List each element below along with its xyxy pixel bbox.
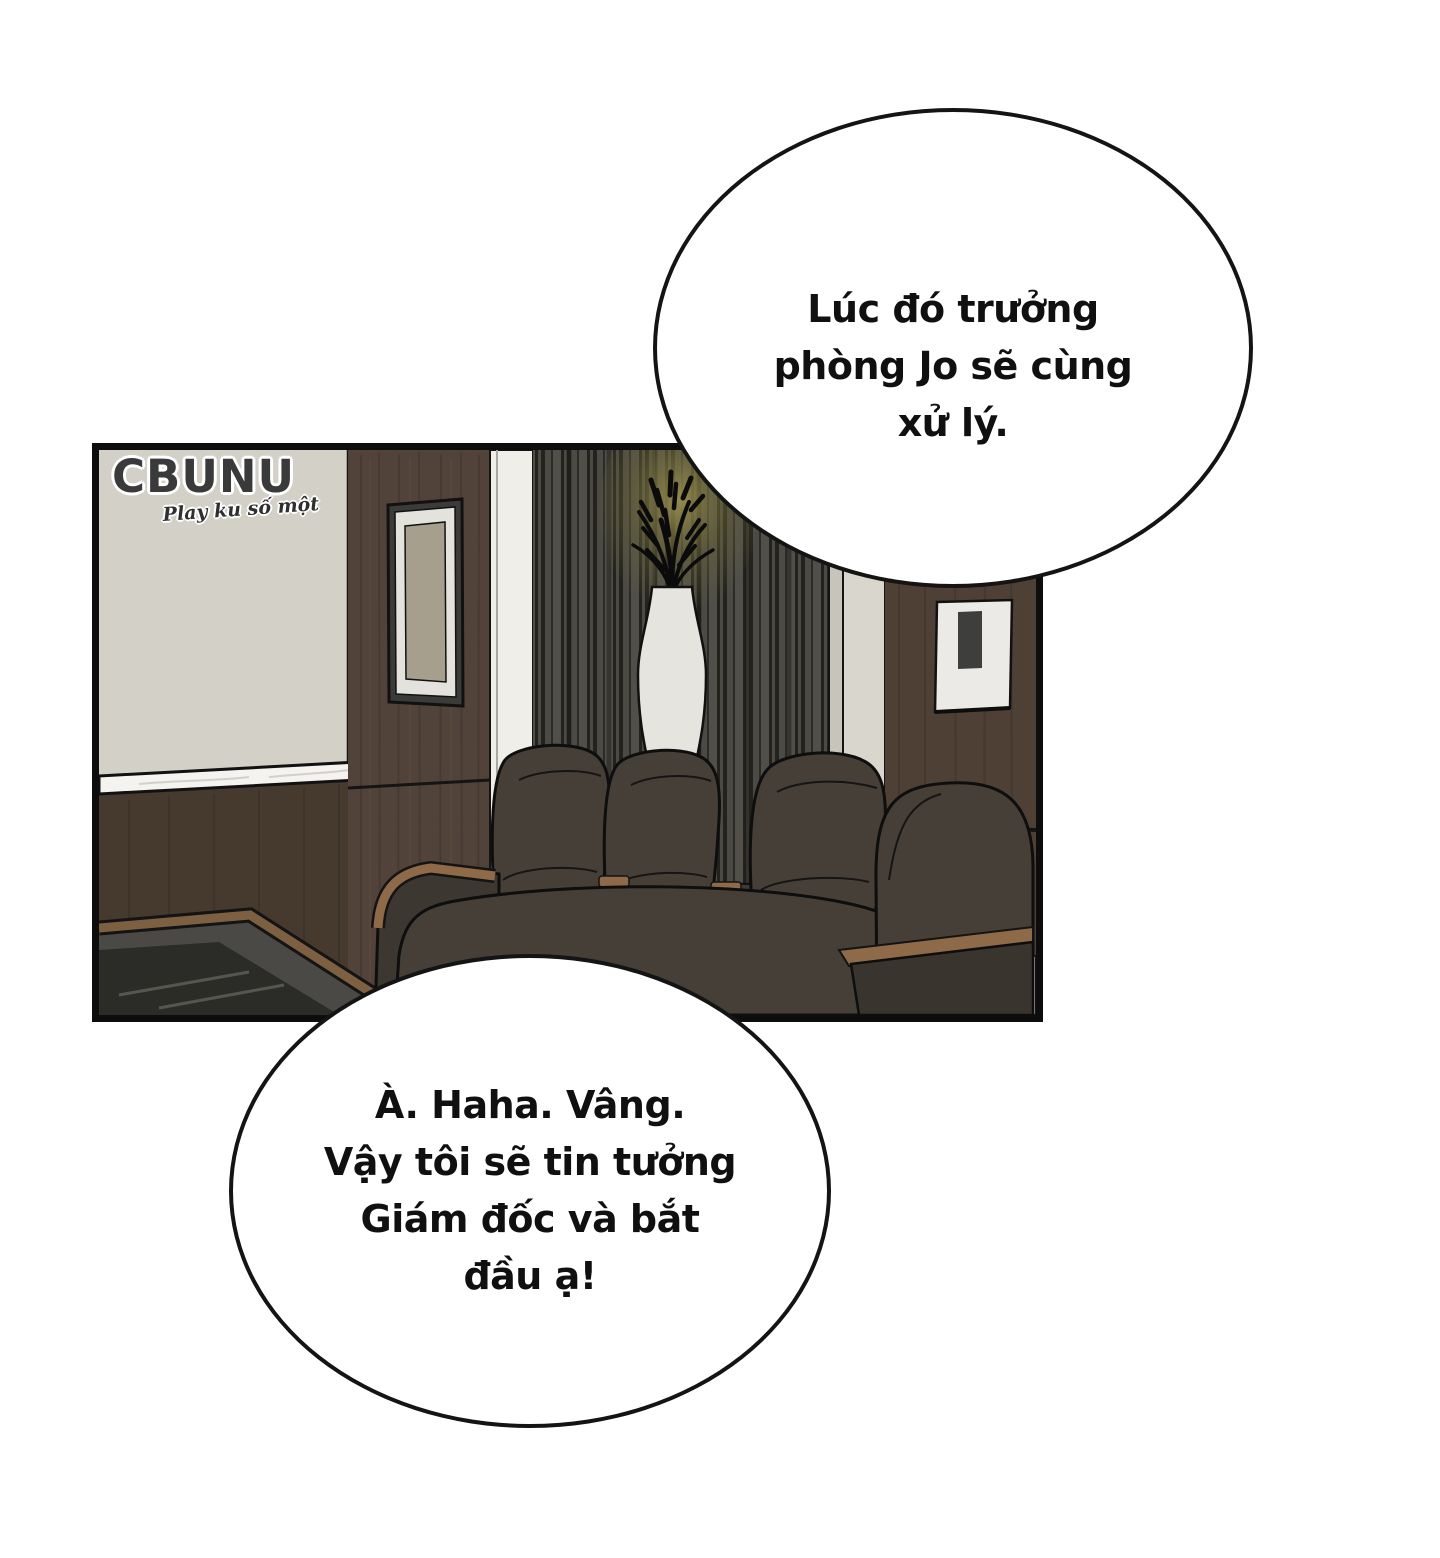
speech-line: đầu ạ! (324, 1248, 736, 1305)
speech-line: phòng Jo sẽ cùng (774, 338, 1133, 395)
picture-frame (935, 600, 1012, 712)
speech-bubble-bottom: À. Haha. Vâng. Vậy tôi sẽ tin tưởng Giám… (229, 954, 831, 1428)
speech-bubble-top: Lúc đó trưởng phòng Jo sẽ cùng xử lý. (653, 108, 1253, 588)
speech-line: Giám đốc và bắt (324, 1191, 736, 1248)
speech-text: Lúc đó trưởng phòng Jo sẽ cùng xử lý. (774, 281, 1133, 452)
speech-line: Lúc đó trưởng (774, 281, 1133, 338)
speech-line: xử lý. (774, 395, 1133, 452)
speech-text: À. Haha. Vâng. Vậy tôi sẽ tin tưởng Giám… (324, 1077, 736, 1305)
wall-mirror (388, 499, 463, 706)
speech-line: À. Haha. Vâng. (324, 1077, 736, 1134)
speech-line: Vậy tôi sẽ tin tưởng (324, 1134, 736, 1191)
comic-page: CBUNU Play ku số một Lúc đó trưởng phòng… (0, 0, 1440, 1558)
wall-left-beige (99, 450, 361, 790)
